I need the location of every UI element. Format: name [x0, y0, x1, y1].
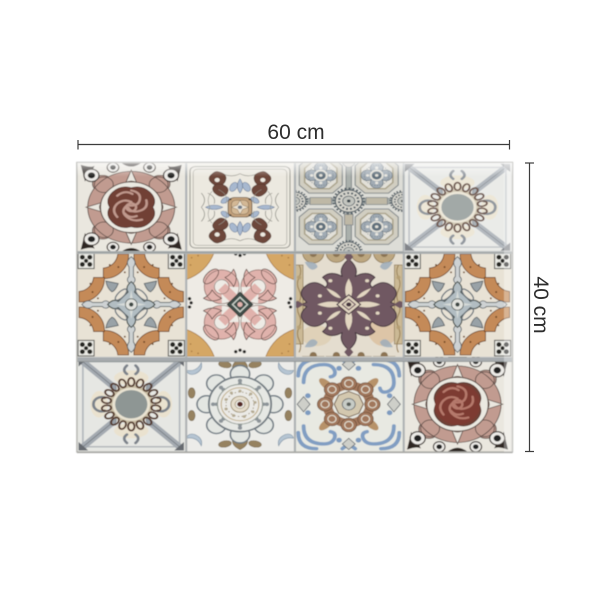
svg-text:60 cm: 60 cm [267, 121, 324, 144]
svg-text:40 cm: 40 cm [529, 276, 552, 333]
